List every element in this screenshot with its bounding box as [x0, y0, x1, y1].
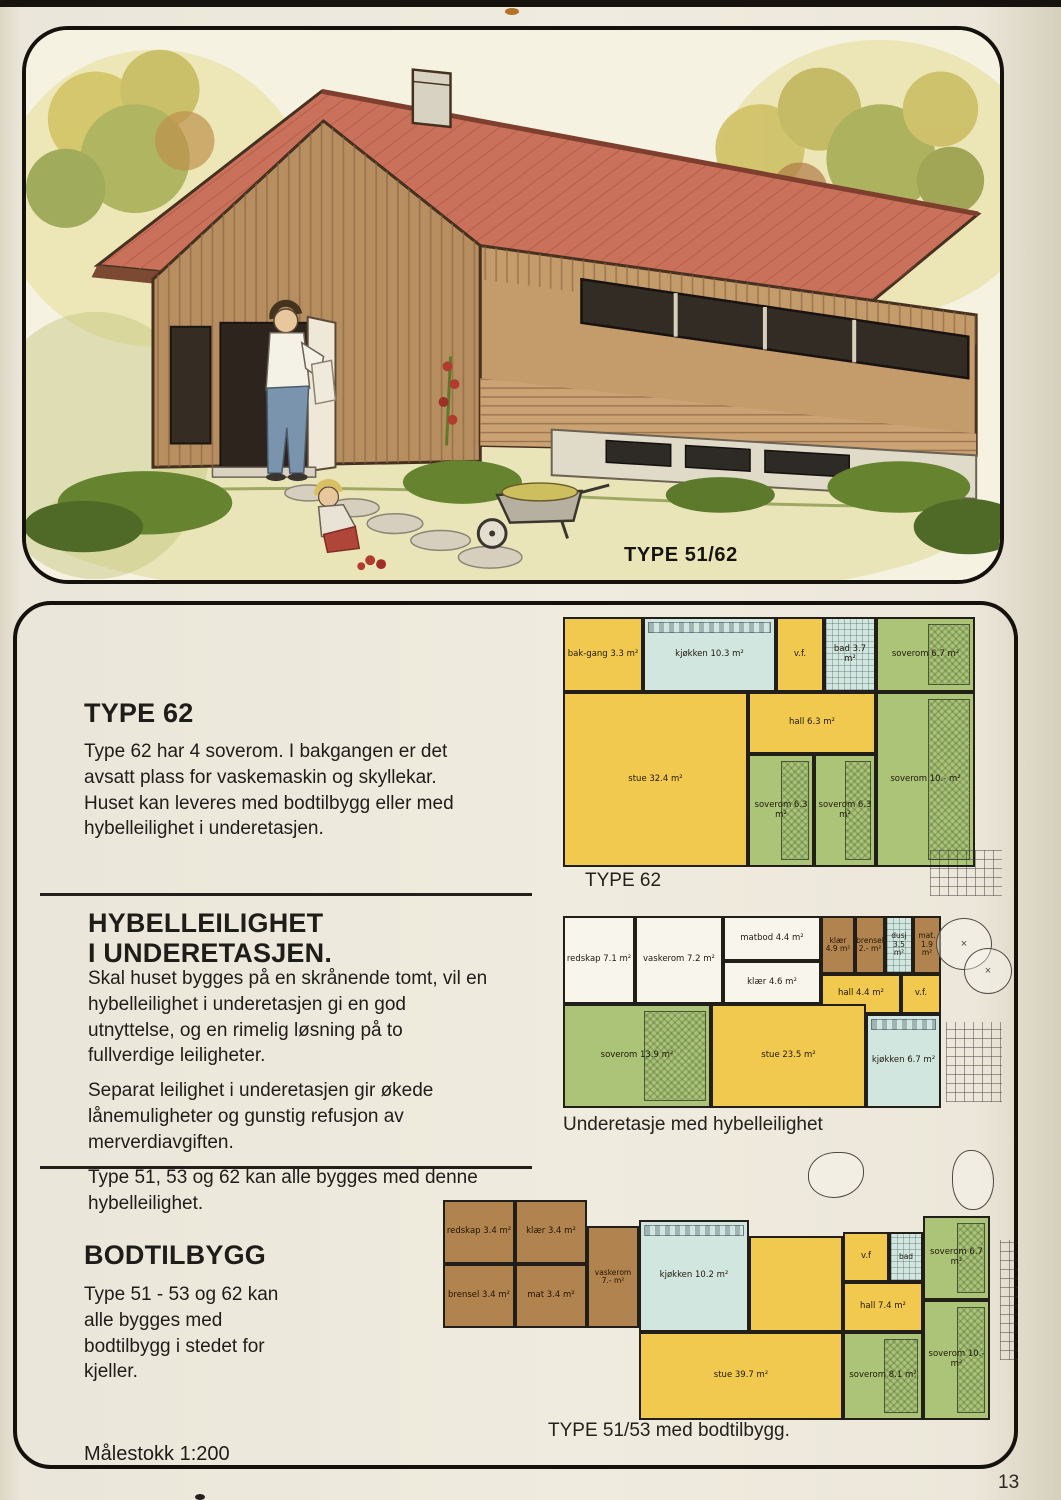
room-soverom: soverom 6.3 m² [748, 754, 814, 867]
room-soverom: soverom 13.9 m² [563, 1004, 711, 1108]
room-vindfang: v.f [843, 1232, 889, 1282]
room-soverom: soverom 10.- m² [876, 692, 975, 867]
plan-caption-type62: TYPE 62 [585, 870, 661, 892]
scan-top-edge [0, 0, 1061, 7]
room-redskap: redskap 3.4 m² [443, 1200, 515, 1264]
catalog-page: { "page": { "number": "13", "scale_note"… [0, 0, 1061, 1500]
heading-line: I UNDERETASJEN. [88, 938, 332, 968]
house-illustration [26, 30, 1000, 580]
hero-caption: TYPE 51/62 [624, 544, 738, 567]
room-mat: mat. 1.9 m² [913, 916, 941, 974]
room-soverom: soverom 6.7 m² [876, 617, 975, 692]
room-bad: bad 3.7 m² [824, 617, 876, 692]
room-vaskerom: vaskerom 7.2 m² [635, 916, 723, 1004]
section-body-bod: Type 51 - 53 og 62 kan alle bygges med b… [84, 1282, 309, 1394]
room-klaer: klær 3.4 m² [515, 1200, 587, 1264]
room-vaskerom: vaskerom 7.- m² [587, 1226, 639, 1328]
room-dusj: dusj 3.5 m² [885, 916, 913, 974]
room-redskap: redskap 7.1 m² [563, 916, 635, 1004]
room-vindfang: v.f. [901, 974, 941, 1014]
room-kjokken: kjøkken 6.7 m² [866, 1014, 941, 1108]
room-mat: mat 3.4 m² [515, 1264, 587, 1328]
section-body-hybel: Skal huset bygges på en skrånende tomt, … [88, 966, 490, 1225]
hatch-sketch [946, 1022, 1002, 1102]
floorplan-bodtilbygg: redskap 3.4 m² klær 3.4 m² brensel 3.4 m… [443, 1196, 990, 1422]
paragraph: Skal huset bygges på en skrånende tomt, … [88, 966, 490, 1069]
section-divider [40, 893, 532, 896]
section-heading-hybel: HYBELLEILIGHET I UNDERETASJEN. [88, 908, 332, 968]
room-matbod: matbod 4.4 m² [723, 916, 821, 961]
room-soverom: soverom 8.1 m² [843, 1332, 923, 1420]
room-bakgang: bak-gang 3.3 m² [563, 617, 643, 692]
room-brensel: brensel 3.4 m² [443, 1264, 515, 1328]
scan-speck [195, 1494, 205, 1500]
section-heading-bod: BODTILBYGG [84, 1240, 266, 1271]
section-body-type62: Type 62 har 4 soverom. I bakgangen er de… [84, 739, 486, 851]
room-soverom: soverom 6.7 m² [923, 1216, 990, 1300]
room-stue: stue 23.5 m² [711, 1004, 866, 1108]
room-soverom: soverom 10.- m² [923, 1300, 990, 1420]
section-divider [40, 1166, 532, 1169]
tree-sketch [952, 1150, 994, 1210]
paragraph: Type 62 har 4 soverom. I bakgangen er de… [84, 739, 486, 842]
stue-dining-area [749, 1236, 843, 1332]
tree-sketch: × [964, 948, 1012, 994]
plan-caption-bodtilbygg: TYPE 51/53 med bodtilbygg. [548, 1420, 790, 1442]
room-brensel: brensel 2.- m² [855, 916, 885, 974]
room-hall: hall 7.4 m² [843, 1282, 923, 1332]
scale-note: Målestokk 1:200 [84, 1443, 230, 1466]
floorplan-underetasje: redskap 7.1 m² vaskerom 7.2 m² matbod 4.… [563, 916, 941, 1108]
section-heading-type62: TYPE 62 [84, 698, 193, 729]
paragraph: Type 51, 53 og 62 kan alle bygges med de… [88, 1165, 490, 1217]
room-hall: hall 6.3 m² [748, 692, 876, 754]
room-stue: stue 32.4 m² [563, 692, 748, 867]
room-soverom: soverom 6.3 m² [814, 754, 876, 867]
hatch-sketch [930, 850, 1002, 896]
room-stue: stue 39.7 m² [639, 1332, 843, 1420]
page-number: 13 [998, 1472, 1019, 1494]
heading-line: HYBELLEILIGHET [88, 908, 332, 938]
floorplan-type62: bak-gang 3.3 m² kjøkken 10.3 m² v.f. bad… [563, 617, 975, 867]
room-klaer: klær 4.9 m² [821, 916, 855, 974]
hero-illustration-frame: TYPE 51/62 [22, 26, 1004, 584]
room-bad: bad [889, 1232, 923, 1282]
paragraph: Separat leilighet i underetasjen gir øke… [88, 1078, 490, 1155]
plan-caption-underetasje: Underetasje med hybelleilighet [563, 1114, 823, 1136]
paragraph: Type 51 - 53 og 62 kan alle bygges med b… [84, 1282, 309, 1385]
room-vindfang: v.f. [776, 617, 824, 692]
room-kjokken: kjøkken 10.2 m² [639, 1220, 749, 1332]
room-kjokken: kjøkken 10.3 m² [643, 617, 776, 692]
scan-speck [505, 8, 519, 15]
room-klaer: klær 4.6 m² [723, 961, 821, 1004]
hatch-sketch [1000, 1240, 1018, 1360]
